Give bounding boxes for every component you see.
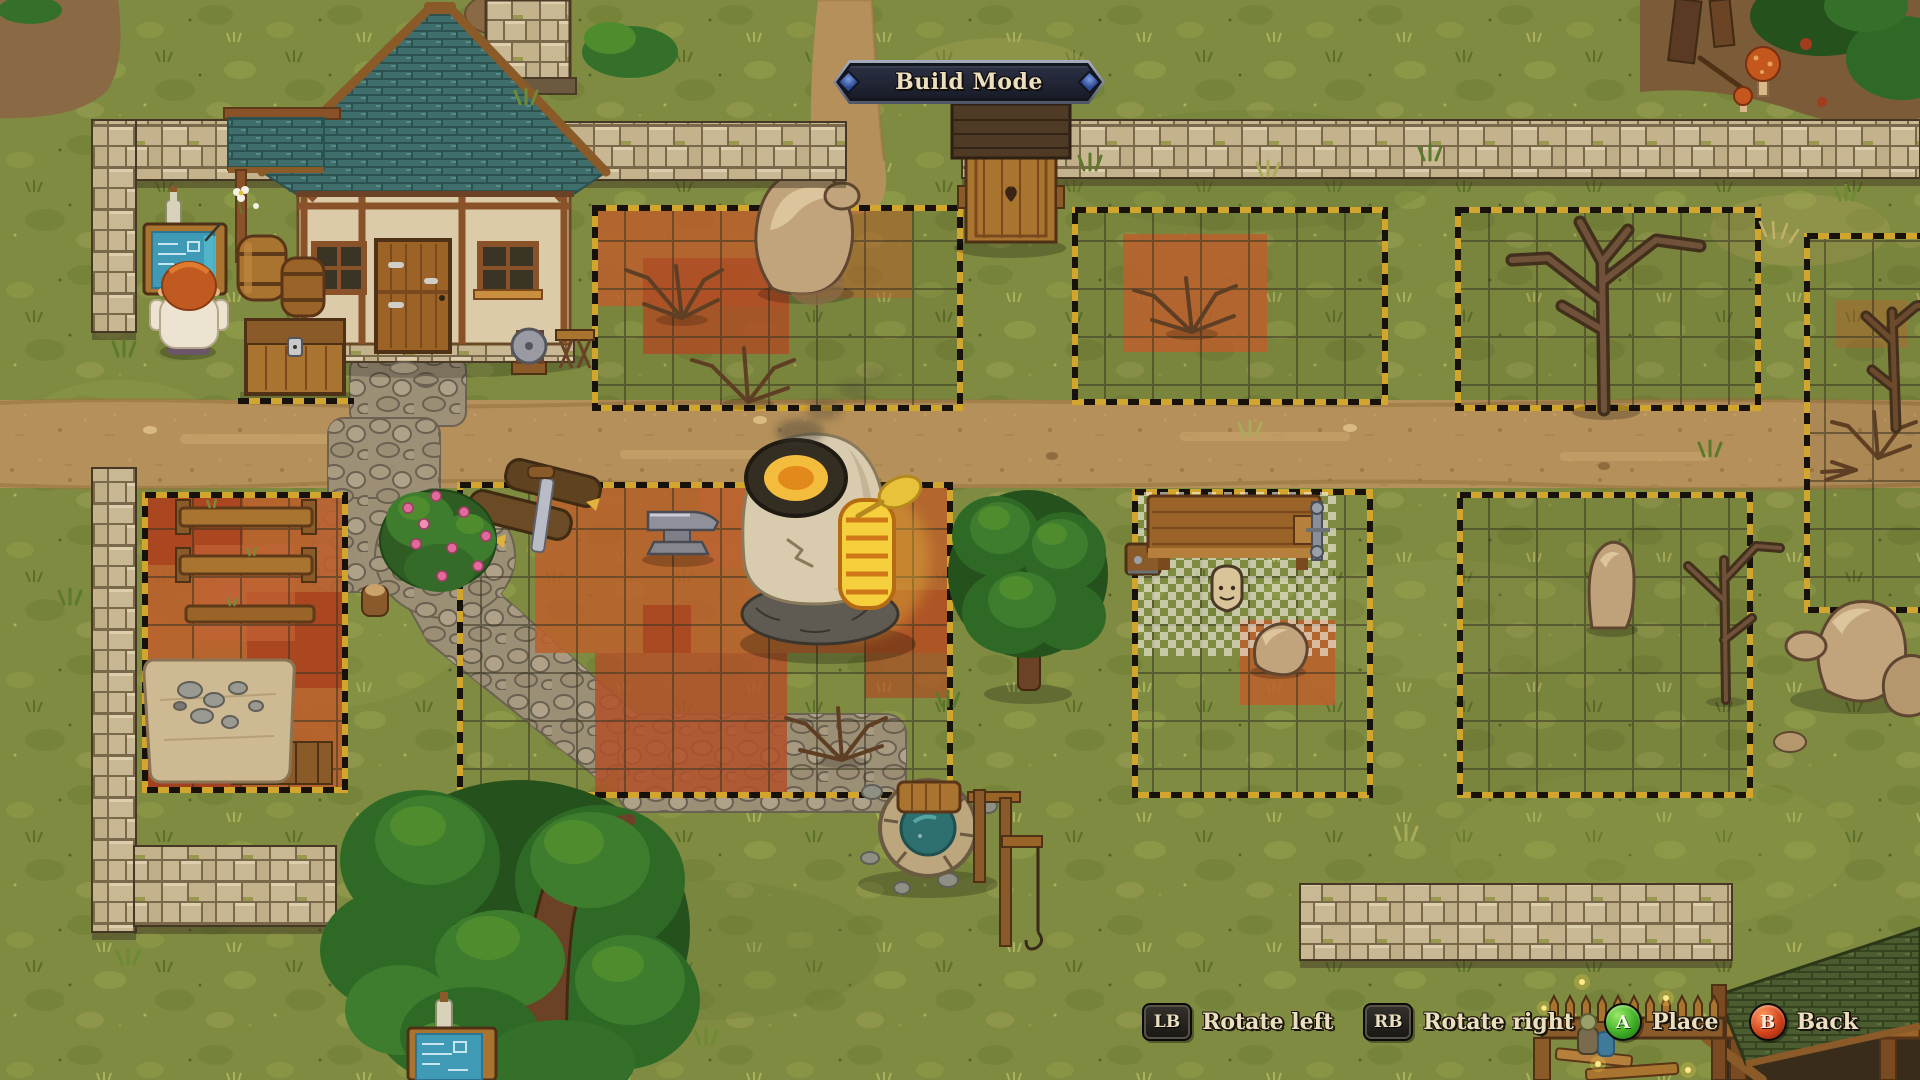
oak-tree [320,780,700,1080]
hint-place: A Place [1604,1003,1719,1041]
build-zone-h[interactable] [1126,492,1370,795]
hint-rotate-left: LB Rotate left [1142,1003,1333,1041]
storage-trunk[interactable] [238,320,354,402]
hint-back: B Back [1749,1003,1859,1041]
mode-title: Build Mode [833,60,1105,104]
window [474,244,542,299]
outhouse[interactable] [952,104,1070,258]
rb-button-icon: RB [1363,1003,1413,1041]
game-screen: Build Mode LB Rotate left RB Rotate righ… [0,0,1920,1080]
build-zone-i[interactable] [1460,495,1780,795]
boulder [756,171,859,305]
build-mode-banner: Build Mode [833,60,1105,104]
b-button-icon: B [1749,1003,1787,1041]
a-button-icon: A [1604,1003,1642,1041]
lb-button-icon: LB [1142,1003,1192,1041]
build-zone-a[interactable] [595,171,960,410]
workbench-placement-preview[interactable] [1126,492,1336,656]
marker-icon [1212,566,1242,611]
game-world [0,0,1920,1080]
hint-rotate-right: RB Rotate right [1363,1003,1574,1041]
build-zone-e[interactable] [144,495,345,790]
build-zone-b[interactable] [1075,210,1385,402]
build-zone-d[interactable] [1807,236,1920,610]
build-zone-c[interactable] [1458,210,1758,420]
controller-hint-bar: LB Rotate left RB Rotate right A Place B… [1142,1002,1858,1042]
